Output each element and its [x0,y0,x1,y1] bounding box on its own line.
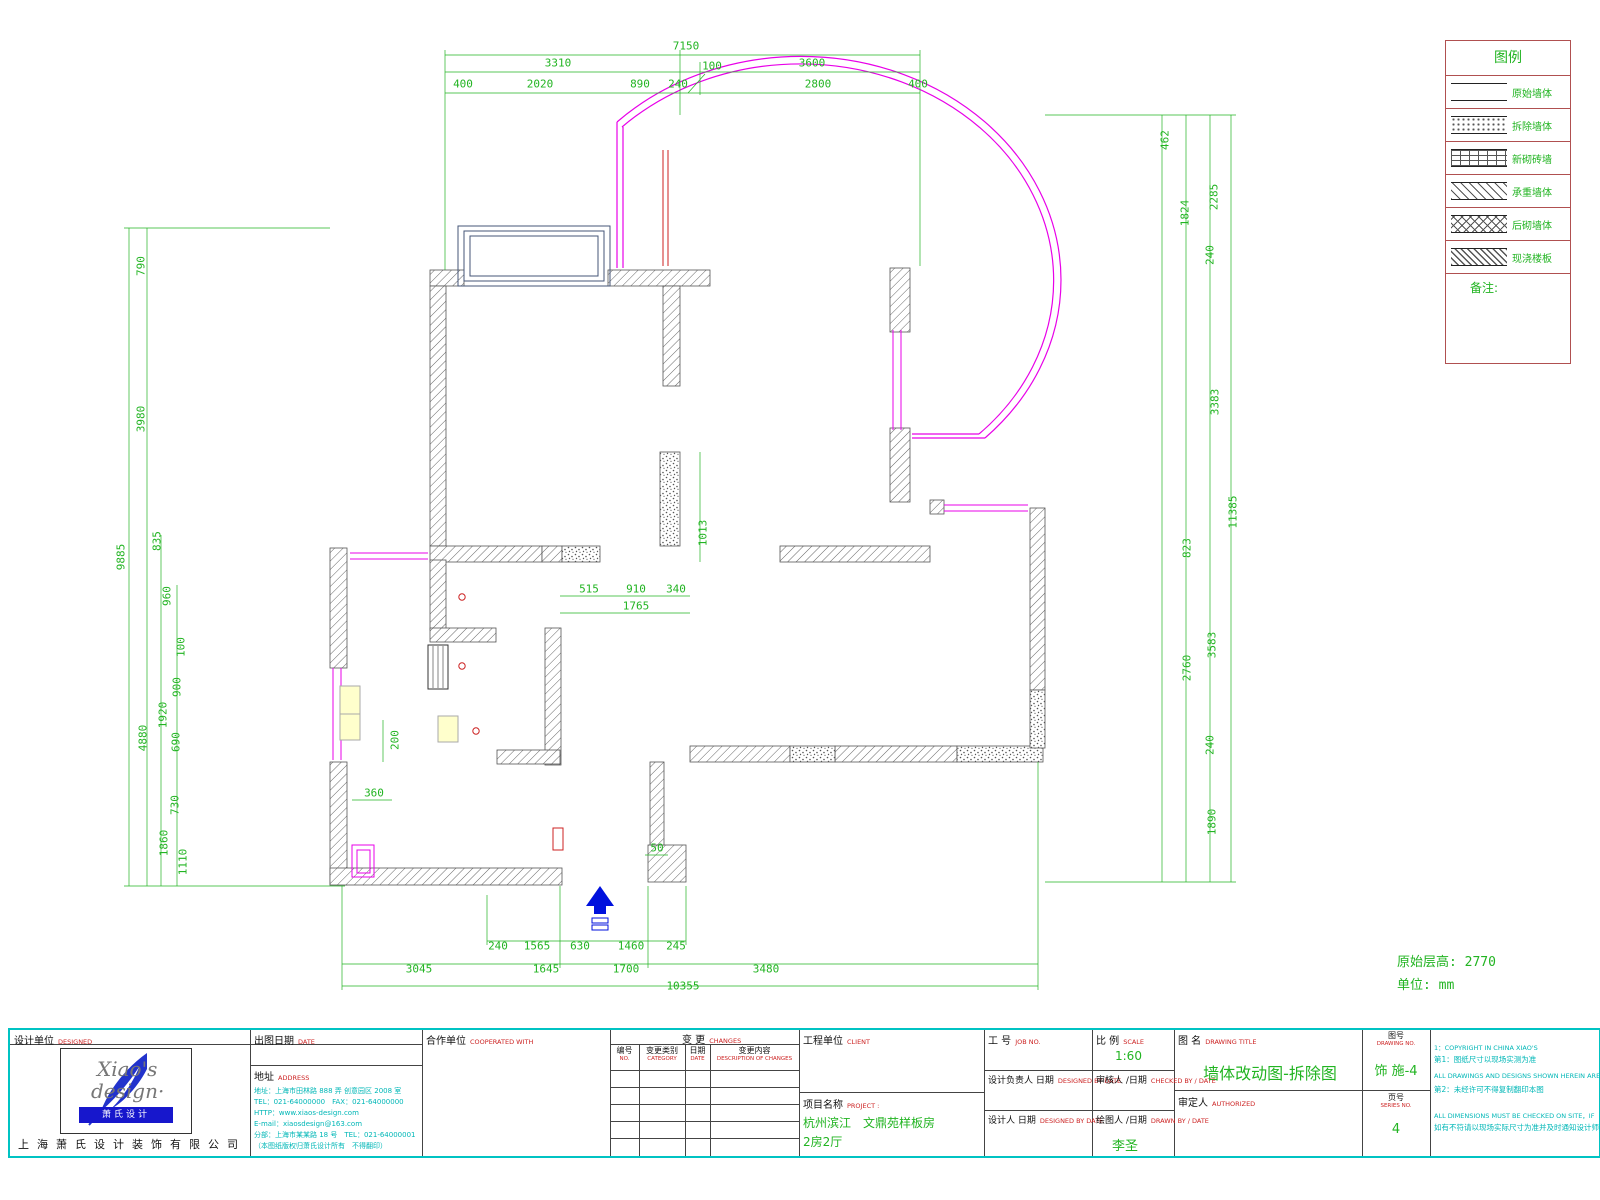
floor-height-note: 原始层高: 2770 [1397,951,1496,970]
address-label: 地址ADDRESS [254,1068,309,1083]
logo-text-2: design· [91,1079,164,1103]
floor-plan-svg [0,0,1600,1200]
dim-label: 462 [1159,130,1172,150]
legend-note-label: 备注: [1470,279,1498,296]
dim-label: 1860 [158,830,171,857]
dim-label: 4880 [137,725,150,752]
tb-note-line: ALL DIMENSIONS MUST BE CHECKED ON SITE，I… [1434,1110,1594,1120]
dim-label: 2760 [1181,655,1194,682]
dim-label: 50 [650,842,663,855]
dim-label: 730 [169,795,182,815]
legend-item-label: 拆除墙体 [1512,118,1552,133]
dim-label: 690 [170,732,183,752]
dim-label: 240 [668,78,688,91]
dim-label: 9885 [115,544,128,571]
cabinets [340,645,458,742]
dim-label: 3045 [406,963,433,976]
dim-label: 1890 [1206,809,1219,836]
address-line: E-mail：xiaosdesign@163.com [254,1119,362,1129]
dim-label: 240 [1204,735,1217,755]
drawing-title-value: 墙体改动图-拆除图 [1178,1060,1362,1084]
demolition-markers [459,150,668,850]
address-line: 分部：上海市某某路 18 号 TEL：021-64000001 [254,1130,415,1140]
changes-title: 变 更CHANGES [682,1031,741,1046]
dim-label: 890 [630,78,650,91]
dim-label: 3310 [545,57,572,70]
dim-label: 1460 [618,940,645,953]
legend-item: 现浇楼板 [1446,240,1570,274]
unit-note: 单位: mm [1397,974,1454,993]
legend-item: 原始墙体 [1446,75,1570,109]
changes-col-header: 变更类别CATEGORY [639,1047,685,1062]
legend-item-label: 新砌砖墙 [1512,151,1552,166]
address-line: HTTP：www.xiaos-design.com [254,1108,359,1118]
legend-item: 拆除墙体 [1446,108,1570,142]
changes-col-header: 日期DATE [685,1047,710,1062]
bay-window [458,226,610,286]
title-block: 设计单位DESIGNED Xiao's design· 萧氏设计 上海萧氏设计装… [8,1028,1600,1158]
coop-label: 合作单位COOPERATED WITH [426,1032,533,1047]
designed-by-label: 设计人 日期DESIGNED BY DATE [988,1113,1103,1126]
dim-label: 3980 [135,406,148,433]
legend-title: 图例 [1446,41,1570,76]
changes-col-header: 变更内容DESCRIPTION OF CHANGES [710,1047,799,1062]
dim-label: 1700 [613,963,640,976]
dim-label: 11385 [1227,495,1240,528]
dim-label: 200 [389,730,402,750]
curved-bay-window [617,56,1061,438]
legend-item: 新砌砖墙 [1446,141,1570,175]
dim-label: 100 [175,637,188,657]
job-no-label: 工 号JOB NO. [988,1032,1041,1047]
dim-label: 240 [488,940,508,953]
dim-label: 1765 [623,600,650,613]
dim-label: 900 [171,677,184,697]
address-line: TEL：021-64000000 FAX：021-64000000 [254,1097,404,1107]
dim-label: 1013 [697,520,710,547]
dim-label: 3383 [1209,389,1222,416]
logo-text-1: Xiao's [97,1057,157,1081]
legend-item-label: 后砌墙体 [1512,217,1552,232]
company-name: 上海萧氏设计装饰有限公司 [18,1136,250,1152]
dim-label: 240 [1204,245,1217,265]
dim-label: 3583 [1206,632,1219,659]
drawing-no-value: 饰 施-4 [1362,1060,1430,1079]
wall-demolish-swatch [1451,116,1507,134]
dim-label: 1920 [157,702,170,729]
dim-label: 7150 [673,40,700,53]
client-label: 工程单位CLIENT [803,1032,870,1047]
dim-label: 400 [908,78,928,91]
dim-label: 2285 [1208,184,1221,211]
changes-col-header: 编号NO. [610,1047,639,1062]
project-label: 项目名称PROJECT : [803,1096,879,1111]
legend-item-label: 承重墙体 [1512,184,1552,199]
dim-label: 3600 [799,57,826,70]
dim-label: 245 [666,940,686,953]
wall-bearing-swatch [1451,182,1507,200]
dim-label: 340 [666,583,686,596]
tb-note-line: 1：COPYRIGHT IN CHINA XIAO'S [1434,1042,1538,1052]
address-line: 地址：上海市田林路 888 弄 创意园区 2008 室 [254,1086,401,1096]
drawn-by-value: 李圣 [1112,1135,1138,1154]
dim-label: 400 [453,78,473,91]
dim-label: 515 [579,583,599,596]
drawn-by-label: 绘图人 /日期DRAWN BY / DATE [1096,1113,1209,1126]
wall-original-swatch [1451,83,1507,101]
logo-banner: 萧氏设计 [79,1107,173,1123]
tb-note-line: 第2：未经许可不得复制翻印本图 [1434,1084,1544,1095]
drawing-sheet: 7150 3310 100 3600 400 2020 890 240 2800… [0,0,1600,1200]
project-name-line1: 杭州滨江 文鼎苑样板房 [803,1114,935,1131]
address-line: （本图纸版权归萧氏设计所有 不得翻印） [254,1141,387,1151]
dim-label: 3480 [753,963,780,976]
legend-item-label: 现浇楼板 [1512,250,1552,265]
entrance-arrow [586,886,614,930]
dim-label: 823 [1181,538,1194,558]
series-no-value: 4 [1362,1122,1430,1137]
dim-label: 100 [702,60,722,73]
authorized-label: 审定人AUTHORIZED [1178,1094,1255,1109]
tb-note-line: ALL DRAWINGS AND DESIGNS SHOWN HEREIN AR… [1434,1072,1600,1080]
scale-value: 1:60 [1115,1049,1142,1063]
walls-original [330,268,1045,885]
wall-newbrick-swatch [1451,149,1507,167]
legend-item-label: 原始墙体 [1512,85,1552,100]
drawing-title-label: 图 名DRAWING TITLE [1178,1032,1256,1047]
dim-label: 1110 [177,849,190,876]
dim-label: 2020 [527,78,554,91]
dim-label: 910 [626,583,646,596]
dim-label: 10355 [666,980,699,993]
dim-label: 960 [161,586,174,606]
tb-note-line: 第1：图纸尺寸以现场实测为准 [1434,1054,1536,1065]
dim-label: 835 [151,531,164,551]
project-name-line2: 2房2厅 [803,1133,842,1150]
drawing-no-label: 图号DRAWING NO. [1362,1032,1430,1047]
dim-label: 2800 [805,78,832,91]
scale-label: 比 例SCALE [1096,1032,1144,1047]
slab-swatch [1451,248,1507,266]
designer-label: 设计单位DESIGNED [14,1032,92,1047]
dim-label: 630 [570,940,590,953]
legend-box: 图例 原始墙体 拆除墙体 新砌砖墙 承重墙体 后砌墙体 现浇楼板 备注: [1445,40,1571,364]
date-label: 出图日期DATE [254,1032,315,1047]
dim-label: 790 [135,256,148,276]
company-logo: Xiao's design· 萧氏设计 [60,1048,192,1134]
dim-label: 1824 [1179,200,1192,227]
legend-item: 后砌墙体 [1446,207,1570,241]
wall-later-swatch [1451,215,1507,233]
tb-note-line: 如有不符请以现场实际尺寸为准并及时通知设计师 [1434,1122,1599,1133]
legend-item: 承重墙体 [1446,174,1570,208]
dim-label: 1565 [524,940,551,953]
dim-label: 360 [364,787,384,800]
dim-label: 1645 [533,963,560,976]
series-no-label: 页号SERIES NO. [1362,1094,1430,1109]
